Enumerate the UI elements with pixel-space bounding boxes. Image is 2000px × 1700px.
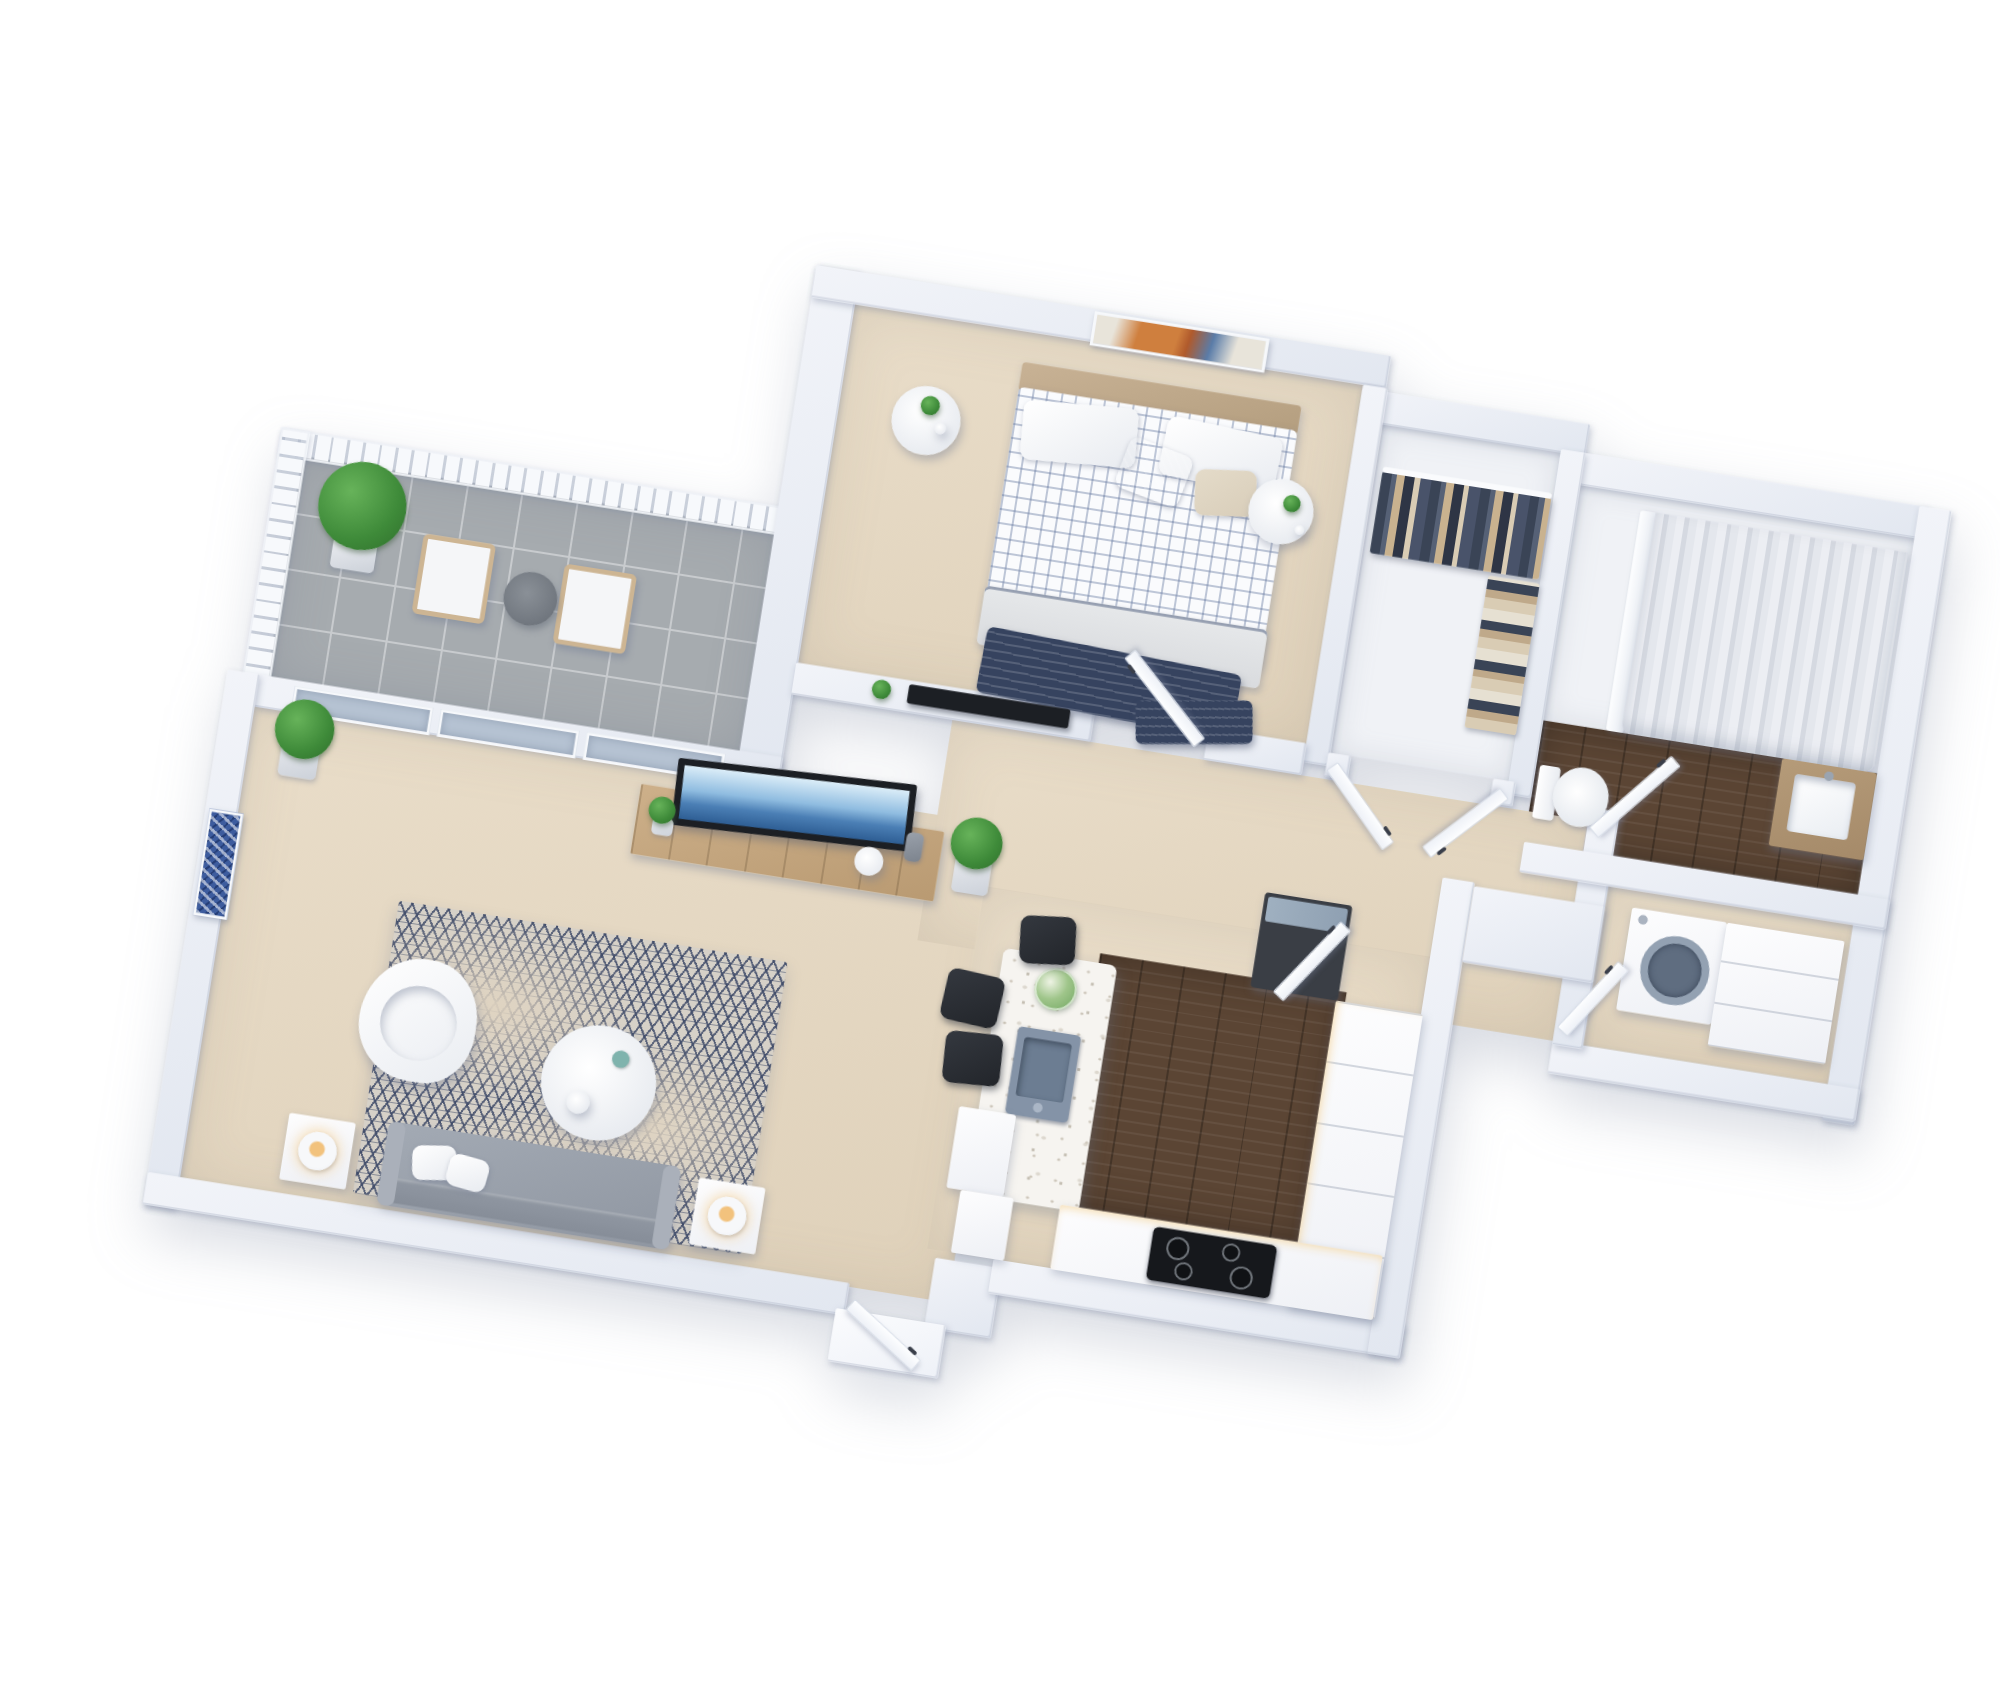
fridge bbox=[1250, 892, 1352, 1001]
burner bbox=[1228, 1265, 1254, 1291]
washer-dial bbox=[1637, 914, 1648, 925]
lamp-side-table-right bbox=[689, 1178, 766, 1255]
armchair-seat bbox=[375, 980, 463, 1066]
burner bbox=[1165, 1235, 1191, 1261]
floor-plan-scene bbox=[0, 0, 2000, 1700]
washing-machine bbox=[1616, 907, 1727, 1024]
lamp-side-table-left bbox=[279, 1113, 356, 1190]
laundry-counter bbox=[1708, 922, 1845, 1064]
vanity-square-sink bbox=[1786, 774, 1856, 841]
washer-door bbox=[1635, 931, 1714, 1010]
burner bbox=[1221, 1242, 1242, 1263]
apartment-3d-floor-plan bbox=[12, 140, 1867, 1580]
bar-stool bbox=[1019, 915, 1077, 966]
table-lamp bbox=[705, 1194, 749, 1238]
burner bbox=[1173, 1261, 1194, 1282]
bar-stool bbox=[941, 1030, 1004, 1088]
shower-curtain bbox=[1621, 513, 1908, 773]
sink-faucet bbox=[1032, 1102, 1043, 1113]
kitchen-cabinet-block bbox=[951, 1190, 1014, 1261]
balcony-armchair-right bbox=[553, 563, 638, 654]
vanity-counter bbox=[1768, 758, 1877, 860]
balcony-armchair-left bbox=[411, 533, 496, 624]
sink-basin bbox=[1015, 1037, 1072, 1103]
bed-pillow-white bbox=[1019, 399, 1139, 468]
table-lamp bbox=[296, 1129, 340, 1173]
